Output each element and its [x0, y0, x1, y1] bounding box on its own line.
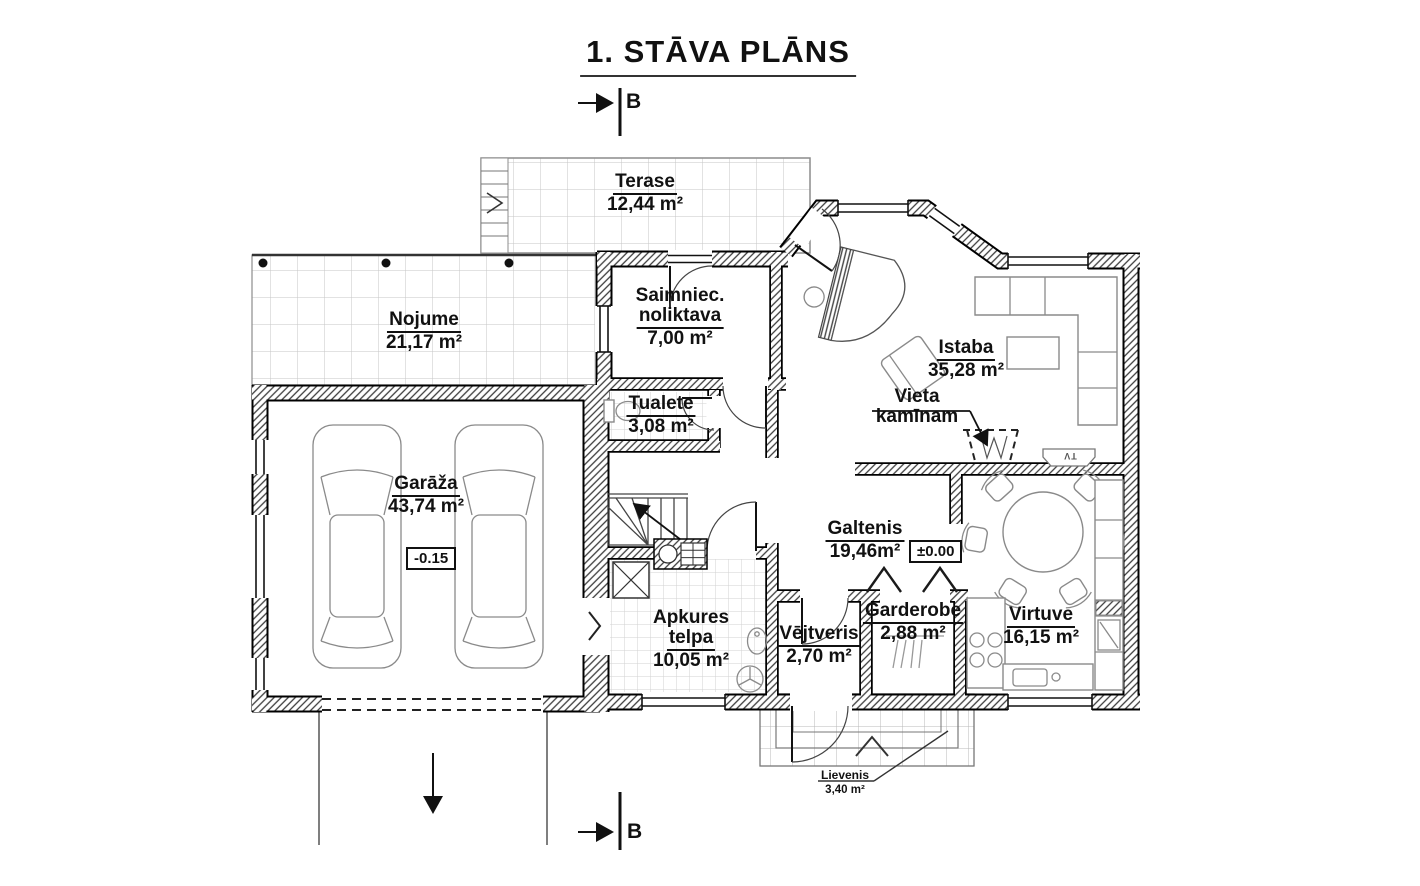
room-label-virtuve: Virtuve 16,15 m² [1003, 605, 1079, 648]
section-label-b-bottom: B [627, 820, 642, 844]
canopy-post [259, 259, 268, 268]
level-marker-main: ±0.00 [909, 540, 962, 563]
page-title: 1. STĀVA PLĀNS [580, 34, 856, 77]
car [455, 425, 543, 668]
door-swing-arrow [923, 568, 957, 592]
tv-label: TV [1057, 451, 1083, 461]
room-label-apkures: Apkures telpa 10,05 m² [653, 608, 729, 671]
stairs-up-arrow [634, 504, 685, 543]
section-marker-bottom [578, 792, 620, 850]
section-label-b-top: B [626, 90, 641, 114]
stove-counter [967, 598, 1005, 688]
room-label-nojume: Nojume 21,17 m² [386, 310, 462, 353]
fireplace-leader-arrow [970, 411, 987, 445]
driveway [319, 712, 547, 845]
canopy-post [505, 259, 514, 268]
label-vieta-kaminam: Vieta kamīnam [876, 387, 958, 427]
room-label-tualete: Tualete 3,08 m² [626, 394, 695, 437]
room-label-galtenis: Galtenis 19,46m² [826, 519, 905, 562]
chair [960, 522, 989, 556]
room-label-saimnieciba: Saimniec. noliktava 7,00 m² [636, 286, 725, 349]
coffee-table [1007, 337, 1059, 369]
room-label-vejtveris: Vējtveris 2,70 m² [777, 624, 860, 667]
floor-plan-page: 1. STĀVA PLĀNS B B Terase 12,44 m² Nojum… [0, 0, 1420, 886]
room-label-istaba: Istaba 35,28 m² [928, 338, 1004, 381]
room-label-lievenis: Lievenis 3,40 m² [821, 767, 869, 796]
car [313, 425, 401, 668]
piano-stool [802, 285, 826, 309]
room-label-garderobe: Garderobe 2,88 m² [863, 601, 963, 644]
dining-table [1003, 492, 1083, 572]
level-marker-garage: -0.15 [406, 547, 456, 570]
door-swing-arrow [867, 568, 901, 592]
room-label-garaza: Garāža 43,74 m² [388, 474, 464, 517]
kitchen-counter [1095, 480, 1123, 690]
canopy-post [382, 259, 391, 268]
floor-plan-drawing [0, 0, 1420, 886]
section-marker-top [578, 88, 620, 136]
room-label-terase: Terase 12,44 m² [607, 172, 683, 215]
stairs [608, 494, 688, 545]
